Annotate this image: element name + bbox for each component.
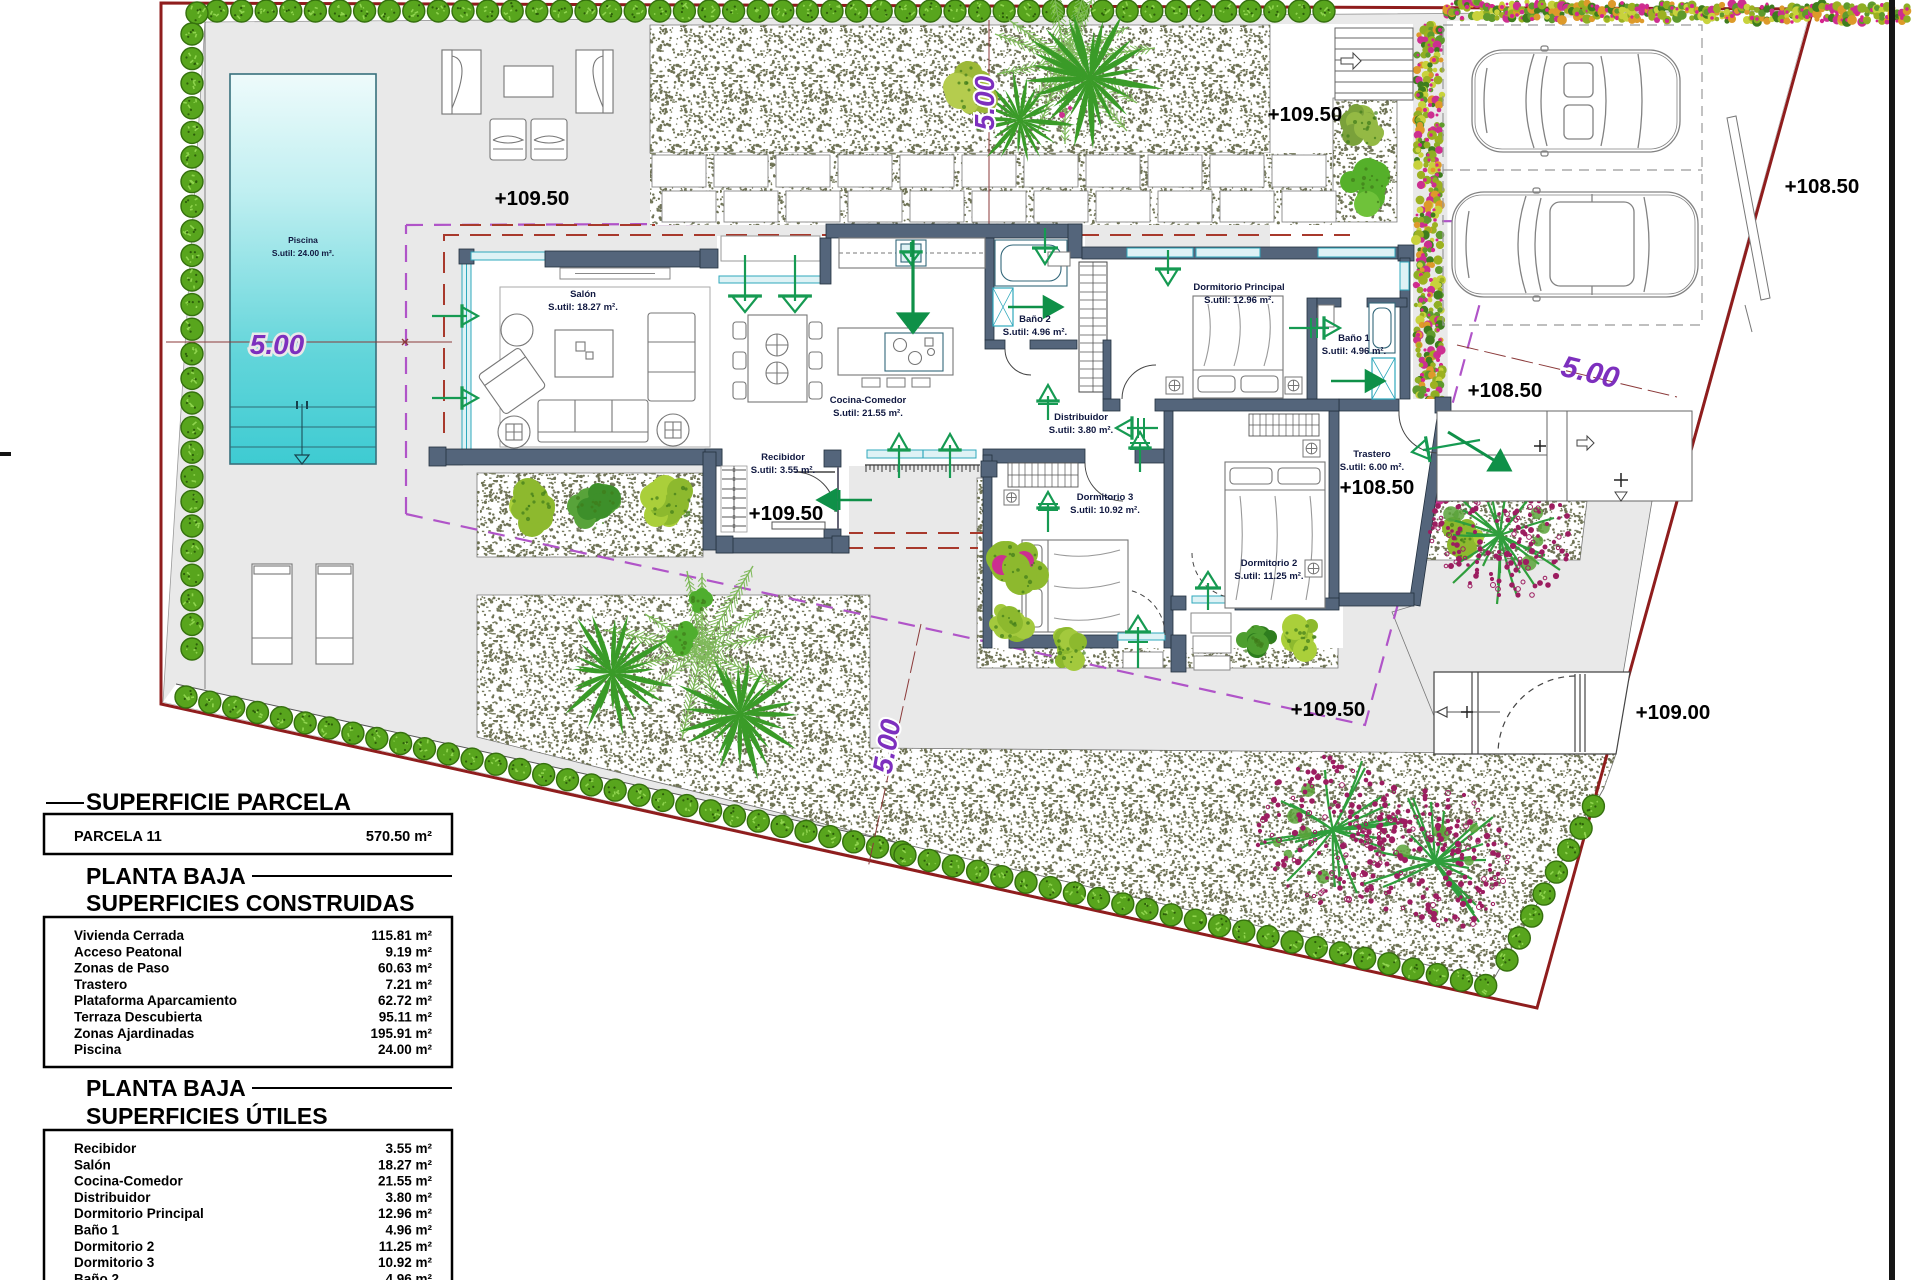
svg-text:SUPERFICIES CONSTRUIDAS: SUPERFICIES CONSTRUIDAS [86,890,414,916]
svg-text:S.util: 3.80 m².: S.util: 3.80 m². [1049,425,1113,436]
svg-text:Piscina: Piscina [74,1042,122,1057]
svg-text:Terraza Descubierta: Terraza Descubierta [74,1010,203,1025]
svg-text:Dormitorio Principal: Dormitorio Principal [74,1206,204,1221]
svg-text:Trastero: Trastero [74,977,127,992]
svg-text:3.80 m²: 3.80 m² [385,1190,432,1205]
svg-text:+109.00: +109.00 [1636,701,1711,724]
svg-text:Baño 2: Baño 2 [74,1271,119,1280]
svg-text:Salón: Salón [74,1157,111,1172]
svg-text:Zonas Ajardinadas: Zonas Ajardinadas [74,1026,194,1041]
svg-text:PLANTA BAJA: PLANTA BAJA [86,863,246,889]
svg-text:S.util: 11.25 m².: S.util: 11.25 m². [1234,571,1303,582]
svg-text:5.00: 5.00 [969,75,1000,130]
svg-text:Dormitorio 3: Dormitorio 3 [1077,492,1133,503]
svg-text:S.util: 10.92 m².: S.util: 10.92 m². [1070,505,1140,516]
svg-text:Baño 1: Baño 1 [74,1223,120,1238]
svg-text:21.55 m²: 21.55 m² [378,1174,433,1189]
svg-text:3.55 m²: 3.55 m² [385,1141,432,1156]
svg-text:+109.50: +109.50 [495,187,570,210]
svg-text:Dormitorio 3: Dormitorio 3 [74,1255,155,1270]
svg-text:PLANTA BAJA: PLANTA BAJA [86,1075,246,1101]
svg-text:10.92 m²: 10.92 m² [378,1255,433,1270]
svg-text:Trastero: Trastero [1353,449,1391,460]
svg-text:+108.50: +108.50 [1468,379,1543,402]
svg-text:95.11 m²: 95.11 m² [379,1010,433,1025]
svg-text:Cocina-Comedor: Cocina-Comedor [74,1174,184,1189]
svg-text:Plataforma Aparcamiento: Plataforma Aparcamiento [74,993,237,1008]
svg-text:+109.50: +109.50 [1268,103,1343,126]
svg-text:115.81 m²: 115.81 m² [371,928,432,943]
svg-text:7.21 m²: 7.21 m² [385,977,432,992]
svg-text:18.27 m²: 18.27 m² [378,1157,433,1172]
svg-text:S.util: 24.00 m².: S.util: 24.00 m². [272,248,334,258]
svg-text:+108.50: +108.50 [1785,175,1860,198]
svg-text:S.util: 6.00 m².: S.util: 6.00 m². [1340,462,1404,473]
svg-text:SUPERFICIE PARCELA: SUPERFICIE PARCELA [86,789,351,816]
svg-text:Distribuidor: Distribuidor [1054,412,1108,423]
svg-text:12.96 m²: 12.96 m² [378,1206,433,1221]
svg-text:Dormitorio Principal: Dormitorio Principal [1193,282,1284,293]
svg-text:S.util: 12.96 m².: S.util: 12.96 m². [1204,295,1274,306]
svg-text:Distribuidor: Distribuidor [74,1190,151,1205]
svg-text:S.util: 21.55 m².: S.util: 21.55 m². [833,408,903,419]
svg-text:60.63 m²: 60.63 m² [378,961,433,976]
svg-text:11.25 m²: 11.25 m² [379,1239,433,1254]
svg-text:9.19 m²: 9.19 m² [385,944,432,959]
svg-text:Vivienda Cerrada: Vivienda Cerrada [74,928,185,943]
svg-text:Dormitorio 2: Dormitorio 2 [1241,558,1297,569]
svg-text:62.72 m²: 62.72 m² [378,993,433,1008]
svg-text:Recibidor: Recibidor [74,1141,137,1156]
svg-text:Cocina-Comedor: Cocina-Comedor [830,395,907,406]
svg-text:570.50 m²: 570.50 m² [366,829,432,845]
svg-text:Piscina: Piscina [288,235,318,245]
svg-text:+109.50: +109.50 [1291,698,1366,721]
svg-text:Zonas de Paso: Zonas de Paso [74,961,169,976]
svg-text:PARCELA 11: PARCELA 11 [74,829,162,845]
svg-text:5.00: 5.00 [250,329,305,360]
svg-text:Baño 1: Baño 1 [1338,333,1370,344]
svg-text:SUPERFICIES ÚTILES: SUPERFICIES ÚTILES [86,1102,328,1129]
svg-text:Acceso Peatonal: Acceso Peatonal [74,944,182,959]
svg-text:Recibidor: Recibidor [761,452,805,463]
svg-text:195.91 m²: 195.91 m² [370,1026,432,1041]
svg-text:Salón: Salón [570,289,596,300]
svg-text:Dormitorio 2: Dormitorio 2 [74,1239,154,1254]
svg-text:S.util: 4.96 m².: S.util: 4.96 m². [1003,327,1067,338]
svg-text:Baño 2: Baño 2 [1019,314,1051,325]
svg-text:+108.50: +108.50 [1340,476,1415,499]
svg-text:S.util: 3.55 m².: S.util: 3.55 m². [751,465,815,476]
svg-text:4.96 m²: 4.96 m² [385,1223,432,1238]
svg-text:+109.50: +109.50 [749,502,824,525]
svg-text:4.96 m²: 4.96 m² [385,1271,432,1280]
svg-text:S.util: 4.96 m².: S.util: 4.96 m². [1322,346,1386,357]
svg-text:24.00 m²: 24.00 m² [378,1042,433,1057]
svg-text:S.util: 18.27 m².: S.util: 18.27 m². [548,302,618,313]
